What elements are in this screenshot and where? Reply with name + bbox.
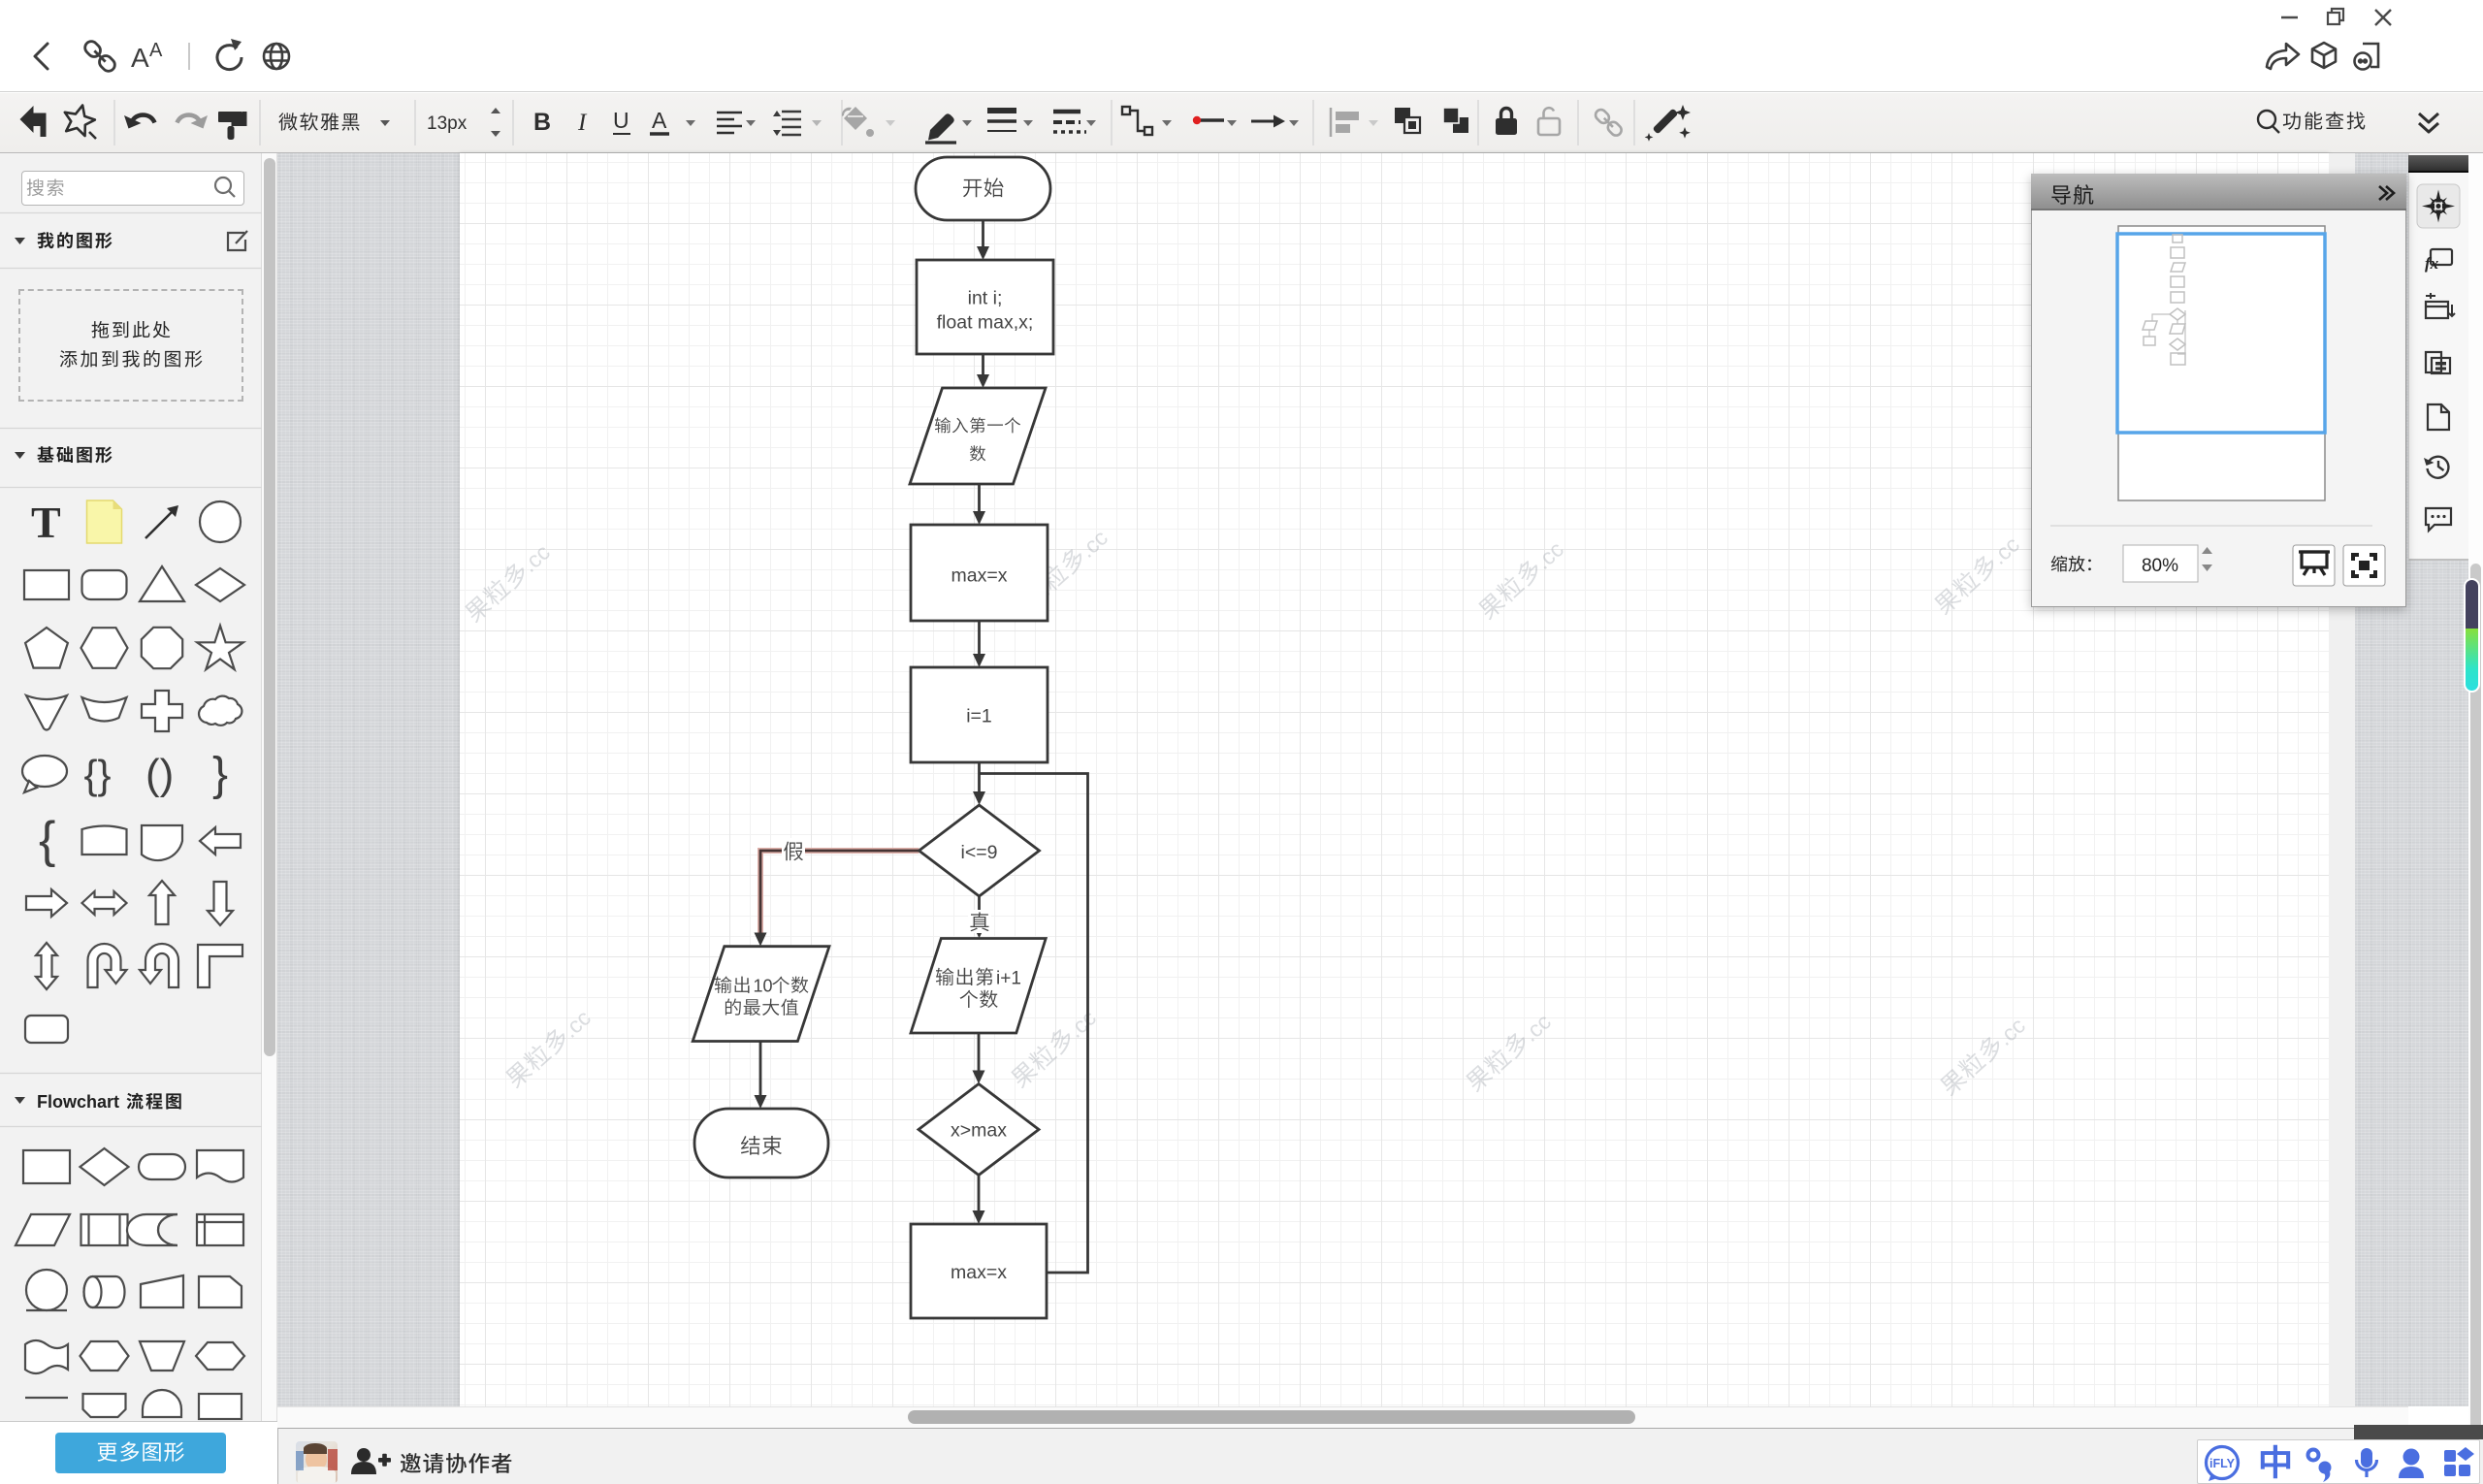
- svg-text:B: B: [533, 109, 551, 136]
- svg-text:max=x: max=x: [951, 1262, 1007, 1283]
- svg-text:A: A: [149, 40, 163, 61]
- svg-text:x>max: x>max: [951, 1120, 1007, 1142]
- svg-text:{}: {}: [84, 752, 112, 797]
- svg-text:i+1: i+1: [996, 969, 1021, 989]
- svg-text:10: 10: [754, 977, 773, 996]
- svg-text:13px: 13px: [427, 113, 468, 134]
- svg-text:max=x: max=x: [951, 565, 1008, 587]
- svg-text:{: {: [39, 812, 55, 868]
- svg-text:T: T: [31, 498, 61, 547]
- svg-text:I: I: [577, 110, 588, 136]
- svg-text:i=1: i=1: [966, 706, 992, 727]
- svg-text:iFLY: iFLY: [2209, 1457, 2236, 1470]
- svg-text:(): (): [145, 751, 174, 798]
- svg-text:U: U: [613, 108, 629, 133]
- svg-text:fx: fx: [2425, 254, 2439, 273]
- svg-text:}: }: [212, 749, 228, 800]
- svg-text:int i;: int i;: [968, 288, 1003, 309]
- svg-text:Flowchart: Flowchart: [37, 1092, 119, 1112]
- svg-text:float max,x;: float max,x;: [937, 312, 1034, 334]
- svg-text:i<=9: i<=9: [961, 842, 998, 863]
- svg-text:A: A: [652, 108, 667, 133]
- svg-text:80%: 80%: [2142, 556, 2178, 576]
- svg-text:A: A: [131, 43, 149, 73]
